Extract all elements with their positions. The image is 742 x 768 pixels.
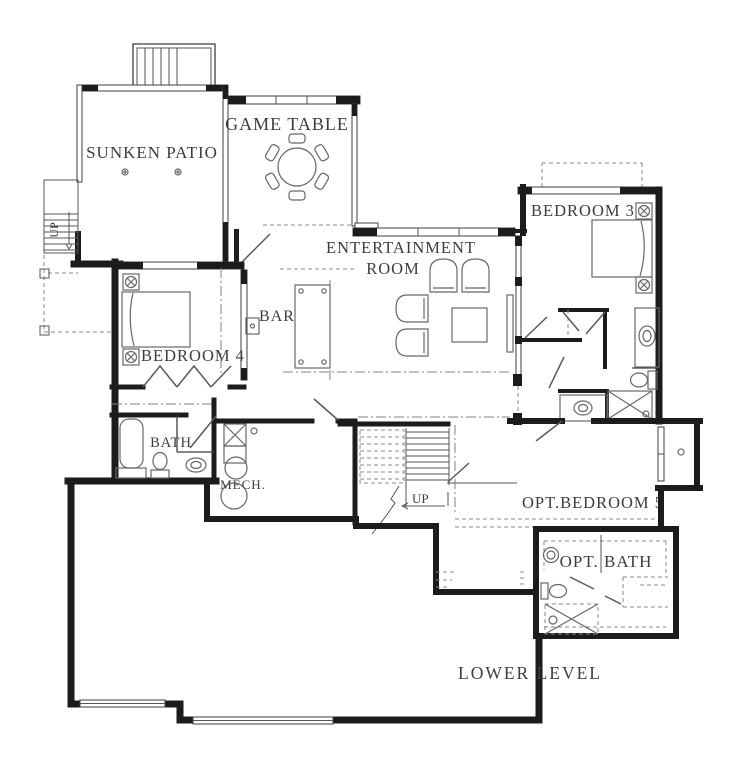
room-label-entertainment-1: ENTERTAINMENT [326,238,476,257]
floor-plan-svg: SUNKEN PATIO UP G [0,0,742,768]
bar-sink-icon [246,318,259,334]
bathtub-icon [116,419,146,478]
window-well [658,421,700,529]
door-swing [211,366,231,387]
stairs-up-left-label: UP [47,222,61,238]
room-label-sunken-patio: SUNKEN PATIO [86,143,218,162]
sink-icon [544,548,559,563]
shuffleboard-table-icon [295,285,330,368]
bed-icon [122,292,190,347]
vanity-sink-icon [635,308,659,367]
door-swing [525,317,547,338]
media-console-icon [507,295,513,352]
door-swing [448,463,469,482]
unfinished-basement [71,481,539,724]
bedroom3-bath [517,308,659,421]
closet-door-swing [563,312,605,334]
shower-icon [545,604,598,634]
deck-stairs-icon [133,44,215,86]
washer-icon [224,424,257,463]
room-label-opt-bath: OPT. BATH [560,552,653,571]
bedroom3: BEDROOM 3 [516,163,662,421]
coffee-table-icon [452,308,487,342]
room-label-bedroom3: BEDROOM 3 [531,201,635,220]
room-label-bath: BATH [150,435,192,451]
room-label-bar: BAR [259,308,295,325]
door-swing [242,234,270,262]
opt-bath: OPT. BATH [520,529,676,636]
mech-room: MECH. [218,399,355,523]
entertainment-room: ENTERTAINMENT ROOM [234,228,522,425]
door-swing [314,399,338,420]
plan-title: LOWER LEVEL [458,663,602,683]
toilet-icon [541,583,567,599]
stairs-up-center-label: UP [412,491,429,506]
bar-area: BAR [241,270,330,380]
room-label-bedroom4: BEDROOM 4 [141,346,245,365]
room-label-mech: MECH. [220,477,266,492]
door-swing [549,357,564,388]
game-table-icon [264,134,329,200]
opt-bedroom5: OPT.BEDROOM 5 [455,421,700,529]
floor-plan-page: SUNKEN PATIO UP G [0,0,742,768]
ceiling-fan-icon [123,274,139,365]
shower-icon [608,391,652,419]
sunken-patio: SUNKEN PATIO [74,85,228,265]
sink-icon [560,395,607,421]
bed-icon [592,220,652,277]
closet-door-swing [143,366,211,387]
room-label-opt-bedroom5: OPT.BEDROOM 5 [522,493,664,512]
room-label-entertainment-2: ROOM [366,259,420,278]
center-stairs-icon: UP [340,424,517,534]
toilet-icon [631,371,658,389]
room-label-game-table: GAME TABLE [225,114,349,134]
door-swing [570,577,621,604]
toilet-icon [151,453,169,479]
bath-room: BATH [68,400,216,481]
sink-icon [186,458,206,472]
